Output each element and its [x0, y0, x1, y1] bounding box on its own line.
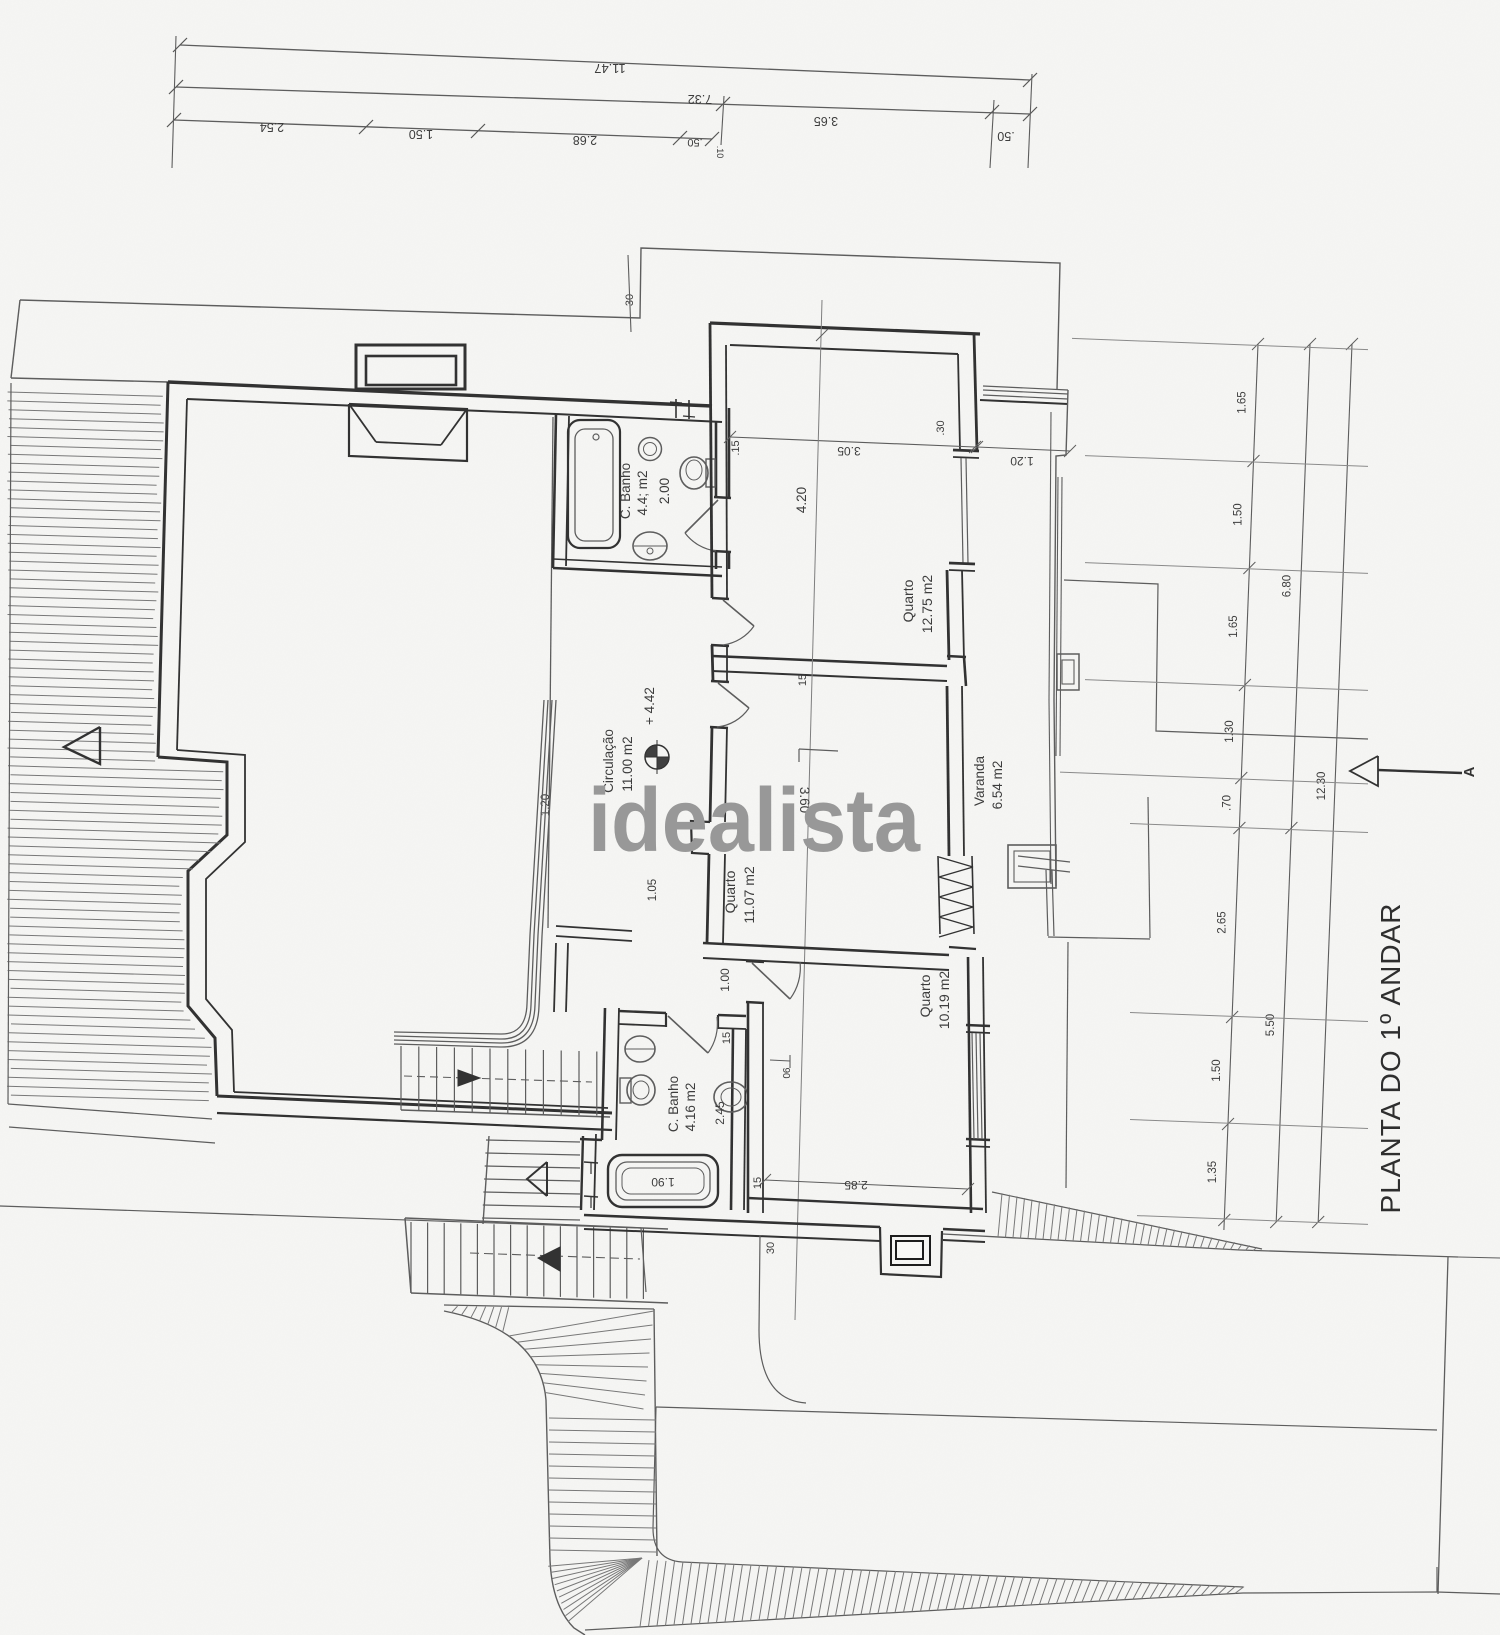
svg-text:idealista: idealista	[588, 771, 921, 871]
svg-text:12.30: 12.30	[1316, 772, 1328, 801]
svg-text:12.75 m2: 12.75 m2	[919, 575, 935, 634]
svg-text:.10: .10	[715, 146, 725, 159]
svg-text:4.20: 4.20	[794, 487, 809, 513]
svg-text:6.54 m2: 6.54 m2	[990, 761, 1005, 810]
svg-text:1.00: 1.00	[718, 968, 732, 992]
svg-text:.30: .30	[935, 420, 947, 435]
svg-text:1.35: 1.35	[1207, 1161, 1219, 1183]
svg-text:6.80: 6.80	[1282, 575, 1294, 597]
svg-text:Quarto: Quarto	[917, 974, 933, 1017]
svg-text:Quarto: Quarto	[900, 579, 916, 622]
svg-text:10.19 m2: 10.19 m2	[936, 971, 952, 1030]
svg-text:15: 15	[797, 674, 809, 686]
svg-text:C. Banho: C. Banho	[666, 1076, 681, 1132]
svg-text:3.05: 3.05	[837, 444, 861, 458]
svg-text:11.47: 11.47	[594, 61, 626, 76]
svg-text:A: A	[1461, 766, 1478, 777]
svg-text:30: 30	[765, 1242, 777, 1254]
svg-text:.15: .15	[730, 440, 742, 455]
svg-text:1.50: 1.50	[1211, 1059, 1223, 1081]
svg-text:1.20: 1.20	[1010, 454, 1034, 468]
svg-text:3.65: 3.65	[814, 114, 838, 128]
svg-text:Quarto: Quarto	[722, 870, 738, 913]
svg-text:15: 15	[752, 1177, 764, 1189]
svg-text:2.54: 2.54	[260, 120, 284, 134]
svg-text:1.65: 1.65	[1237, 391, 1249, 413]
svg-text:2.68: 2.68	[573, 133, 597, 147]
svg-text:4.4; m2: 4.4; m2	[635, 470, 650, 515]
svg-text:2.85: 2.85	[844, 1178, 868, 1192]
svg-text:PLANTA DO 1º ANDAR: PLANTA DO 1º ANDAR	[1375, 903, 1406, 1214]
svg-text:1.65: 1.65	[1228, 615, 1240, 637]
svg-text:2.00: 2.00	[657, 478, 672, 504]
svg-text:.50: .50	[687, 136, 702, 148]
svg-text:2.45: 2.45	[713, 1101, 727, 1125]
svg-text:1.90: 1.90	[651, 1175, 675, 1189]
svg-text:4.16 m2: 4.16 m2	[683, 1083, 698, 1132]
svg-text:90: 90	[780, 1067, 791, 1079]
svg-text:2.65: 2.65	[1217, 911, 1229, 933]
svg-text:.70: .70	[1221, 795, 1233, 811]
svg-text:5.50: 5.50	[1265, 1014, 1277, 1036]
svg-text:C. Banho: C. Banho	[618, 463, 633, 519]
svg-text:11.07 m2: 11.07 m2	[741, 866, 757, 924]
svg-text:1.30: 1.30	[1224, 720, 1236, 742]
svg-text:15: 15	[721, 1032, 733, 1044]
svg-text:1.50: 1.50	[409, 127, 433, 141]
svg-text:+ 4.42: + 4.42	[642, 687, 657, 725]
svg-text:7.32: 7.32	[688, 92, 712, 106]
svg-text:1.05: 1.05	[647, 879, 659, 901]
svg-text:1.50: 1.50	[1232, 503, 1244, 525]
svg-text:.50: .50	[997, 129, 1014, 143]
svg-text:Varanda: Varanda	[972, 755, 987, 806]
